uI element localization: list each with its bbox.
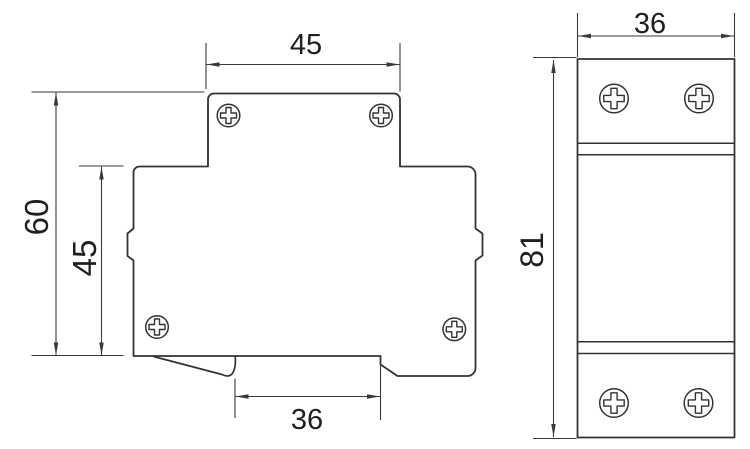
dimension-body-height: 45 (66, 166, 124, 355)
phillips-screw-icon (146, 316, 169, 339)
side-view-outline (128, 94, 483, 377)
din-clip-tab-shape (154, 357, 236, 376)
dimension-label-front-height: 81 (514, 232, 550, 268)
drawing-canvas: 45 60 45 36 (0, 0, 750, 449)
dimension-label-body-height: 45 (66, 240, 103, 277)
phillips-screw-icon (684, 389, 713, 418)
front-view-outline (578, 59, 735, 438)
dimension-top-width: 45 (206, 29, 400, 92)
technical-drawing: 45 60 45 36 (0, 0, 750, 449)
phillips-screw-icon (443, 318, 466, 341)
phillips-screw-icon (370, 104, 393, 127)
phillips-screw-icon (685, 84, 714, 113)
dimension-front-width: 36 (578, 8, 735, 57)
side-view: 45 60 45 36 (18, 29, 483, 436)
front-view: 36 81 (514, 8, 735, 439)
dimension-front-height: 81 (514, 58, 577, 439)
dimension-label-top-width: 45 (290, 29, 322, 61)
phillips-screw-icon (600, 389, 629, 418)
dimension-label-bottom-width: 36 (291, 404, 323, 436)
dimension-label-front-width: 36 (634, 8, 666, 40)
phillips-screw-icon (600, 84, 629, 113)
dimension-bottom-width: 36 (235, 357, 381, 436)
phillips-screw-icon (217, 104, 240, 127)
dimension-label-overall-height: 60 (18, 199, 55, 236)
